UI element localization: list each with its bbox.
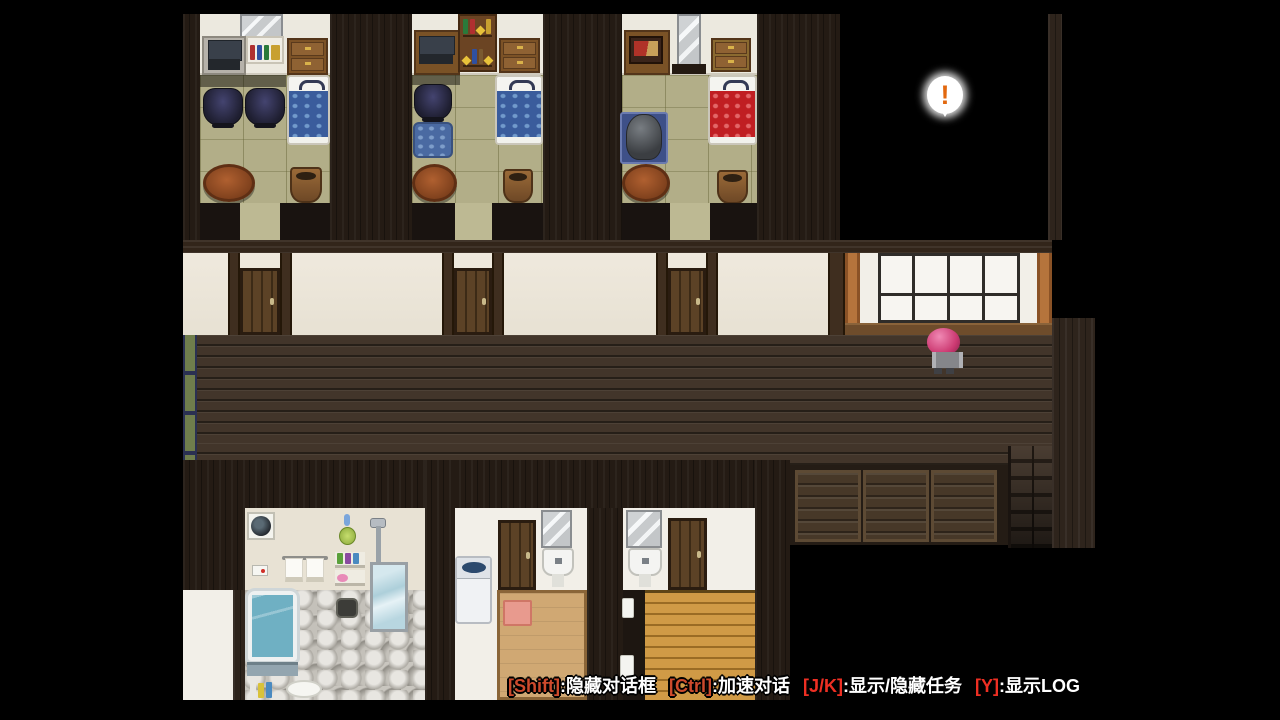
wall-right-top (757, 14, 840, 240)
star-decoration (476, 26, 486, 36)
bottom-left-pillar (233, 590, 245, 700)
book-spine (479, 49, 484, 64)
door-knob (526, 552, 530, 559)
exclamation-balloon-icon: ! (927, 76, 963, 114)
book-spine (470, 19, 475, 34)
fan-blade (251, 516, 271, 536)
cooler-tank (462, 562, 486, 573)
door-pillar (706, 253, 718, 335)
book-spine (250, 45, 255, 60)
bed-pillow (497, 77, 541, 91)
drawer (715, 42, 747, 54)
door-pillar (656, 253, 668, 335)
hall-door-1[interactable] (240, 268, 280, 335)
faucet (642, 558, 649, 564)
door-knob (697, 551, 701, 558)
bed-foot (497, 137, 541, 143)
plant-pot (503, 169, 533, 203)
sink-mirror (541, 510, 572, 548)
bed-pillow (710, 77, 755, 91)
corridor-floor-lower[interactable] (183, 443, 808, 460)
faucet (555, 558, 562, 564)
corridor-floor[interactable] (183, 335, 1052, 443)
shower-pipe (376, 526, 381, 564)
laptop-screen (208, 40, 242, 61)
player-character[interactable] (925, 328, 962, 378)
shelf-row (463, 19, 492, 37)
hint-key-ctrl: [Ctrl] (669, 676, 712, 696)
bottle (258, 683, 264, 698)
bedroom1-mirror (240, 14, 283, 38)
sink-mirror (626, 510, 662, 548)
bedroom1-bookshelf (246, 36, 284, 64)
character-body (932, 352, 963, 368)
bath-puff (337, 574, 348, 582)
laptop-computer (419, 36, 453, 64)
washroom-right-wall (755, 460, 790, 700)
shoji-window (878, 253, 1020, 323)
book-spine (271, 45, 280, 60)
window-mullion (947, 256, 950, 320)
drawer (291, 58, 324, 72)
office-chair (203, 88, 243, 126)
hint-segment: [Shift]:隐藏对话框 (508, 674, 656, 699)
round-table (412, 164, 457, 202)
bedroom1-dresser (287, 38, 328, 75)
bath-shelf (335, 552, 365, 568)
bed-blue[interactable] (287, 75, 330, 145)
lower-wall-band (183, 460, 790, 508)
hall-top-beam (183, 240, 1052, 253)
laptop-computer (208, 40, 240, 70)
towel (285, 558, 303, 582)
walkway-room1 (240, 203, 280, 240)
bath-stool (286, 680, 322, 698)
window-mullion (982, 256, 985, 320)
hint-label: :加速对话 (712, 676, 790, 696)
paper-roll (622, 598, 634, 618)
game-screen: ! [Shift]:隐藏对话框 [Ctrl]:加速对话 [J/K]:显示/隐藏任… (0, 0, 1280, 720)
book-spine (257, 45, 262, 60)
shelf-row (463, 49, 492, 67)
wall-switch (252, 565, 268, 576)
sink (628, 548, 662, 576)
drawer (503, 57, 536, 70)
wall-room1-room2 (330, 14, 412, 240)
bath-mat (503, 600, 532, 626)
hint-segment: [Ctrl]:加速对话 (669, 674, 790, 699)
armor-object (626, 114, 662, 160)
sink (542, 548, 574, 576)
television (629, 36, 663, 64)
bed-foot (289, 137, 328, 143)
wall-strip-topright (1048, 14, 1062, 240)
sliding-door-panel[interactable] (795, 470, 861, 542)
door-knob (482, 298, 486, 305)
hint-segment: [J/K]:显示/隐藏任务 (803, 674, 962, 699)
floor-drain (336, 598, 358, 618)
walkway-room3 (670, 203, 710, 240)
book-spine (264, 45, 269, 60)
office-chair (414, 84, 452, 120)
window-mullion (912, 256, 915, 320)
exclamation-mark: ! (941, 82, 950, 109)
bathtub[interactable] (245, 588, 300, 664)
ventilation-fan (247, 512, 275, 540)
bathroom-left-wall (183, 508, 245, 590)
round-table (622, 164, 670, 202)
door-pillar (492, 253, 504, 335)
office-chair (245, 88, 285, 126)
floor-cushion (413, 122, 453, 158)
bathtub-ledge (247, 662, 298, 676)
shampoo-bottle (353, 553, 359, 564)
door-knob (270, 298, 274, 305)
wall-bath-changing (425, 460, 455, 700)
book-spine (472, 49, 477, 64)
sliding-door-panel[interactable] (931, 470, 997, 542)
shampoo-bottle (337, 553, 343, 564)
loofah-sponge (339, 527, 356, 545)
character-foot (934, 368, 942, 374)
bottle (266, 682, 272, 698)
drawer (291, 42, 324, 56)
walkway-room2 (455, 203, 492, 240)
hint-key-shift: [Shift] (508, 676, 560, 696)
right-wall-strip (1052, 318, 1095, 548)
hint-segment: [Y]:显示LOG (975, 674, 1080, 699)
bed-blanket (497, 91, 541, 137)
drawer (503, 42, 536, 55)
star-decoration (462, 56, 472, 66)
hint-label: :显示LOG (999, 676, 1080, 696)
laptop-screen (419, 36, 455, 55)
counter-shadow (200, 75, 286, 87)
window-mullion (881, 293, 1017, 296)
book-spine (486, 19, 491, 34)
towel (306, 558, 324, 582)
hall-end-pillar (828, 253, 845, 335)
plant-pot (717, 170, 748, 204)
door-pillar (280, 253, 292, 335)
bed-foot (710, 137, 755, 143)
bed-red[interactable] (708, 75, 757, 145)
staircase[interactable] (1008, 446, 1052, 548)
sliding-door-panel[interactable] (863, 470, 929, 542)
bath-water (252, 595, 293, 657)
bedroom2-bookshelf (458, 14, 497, 72)
laptop-base (208, 59, 240, 70)
thermometer (344, 514, 350, 526)
hall-door-2[interactable] (454, 268, 492, 335)
character-hair (927, 328, 960, 355)
water-cooler[interactable] (455, 556, 492, 624)
bed-blanket (289, 91, 328, 137)
plant-pot (290, 167, 322, 203)
washroom-door[interactable] (668, 518, 707, 590)
bedroom3-dresser (711, 38, 751, 72)
door-pillar (442, 253, 454, 335)
bed-blanket (710, 91, 755, 137)
wall-room2-room3 (543, 14, 622, 240)
stair-shadow (1011, 446, 1052, 548)
changing-room-door[interactable] (498, 520, 536, 590)
book-spine (463, 19, 468, 34)
hint-label: :隐藏对话框 (560, 676, 656, 696)
bedroom2-dresser (499, 38, 540, 73)
hint-key-jk: [J/K] (803, 676, 843, 696)
bed-blue[interactable] (495, 75, 543, 145)
round-table (203, 164, 255, 202)
hint-key-y: [Y] (975, 676, 999, 696)
hint-label: :显示/隐藏任务 (843, 676, 962, 696)
bottle (250, 680, 256, 698)
shower-glass-door (370, 562, 408, 632)
bath-shelf (335, 570, 365, 586)
hall-door-3[interactable] (668, 268, 706, 335)
bedroom3-tall-mirror (677, 14, 701, 68)
wall-left-top (183, 14, 200, 240)
character-foot (946, 368, 954, 374)
bottom-left-wall (183, 590, 233, 700)
bath-bottles (250, 676, 278, 698)
shampoo-bottle (345, 553, 351, 564)
mirror-base (672, 64, 706, 74)
door-knob (696, 298, 700, 305)
door-pillar (228, 253, 240, 335)
hint-bar: [Shift]:隐藏对话框 [Ctrl]:加速对话 [J/K]:显示/隐藏任务 … (508, 674, 1080, 699)
star-decoration (484, 56, 494, 66)
laptop-base (419, 54, 453, 64)
drawer (715, 56, 747, 68)
bed-pillow (289, 77, 328, 91)
tv-screen (634, 41, 658, 56)
wall-changing-washroom (587, 508, 623, 700)
